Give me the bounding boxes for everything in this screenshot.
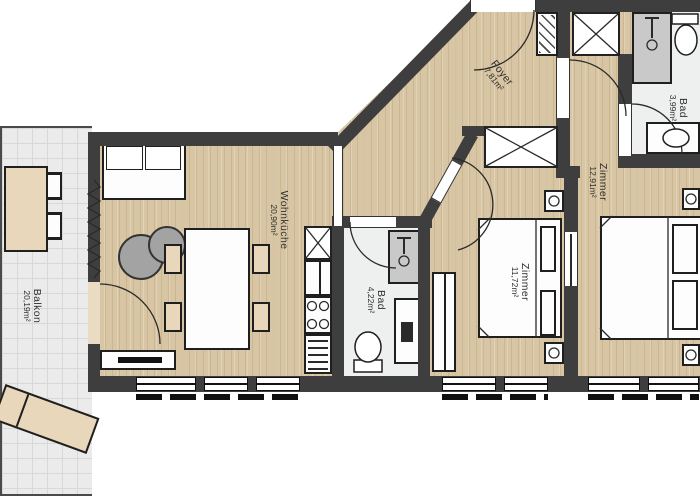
- bedrooms-connect-opening: [564, 232, 578, 286]
- wardrobe-bedroom2: [572, 12, 620, 56]
- dining-table: [184, 228, 250, 350]
- wall-left: [88, 132, 100, 392]
- nightstand: [544, 342, 564, 364]
- room-label-wohnkueche: Wohnküche 20,90m²: [268, 191, 290, 250]
- stove: [304, 296, 332, 334]
- nightstand: [544, 190, 564, 212]
- window: [256, 377, 300, 391]
- window: [204, 377, 248, 391]
- window: [504, 377, 548, 391]
- sofa: [102, 142, 186, 200]
- balcony-chair: [46, 172, 62, 200]
- pillow: [672, 224, 698, 274]
- pillow: [540, 226, 556, 272]
- bath2-door-opening: [618, 104, 632, 156]
- dishwasher: [304, 334, 332, 374]
- living-opening: [333, 146, 343, 226]
- room-label-bad2: Bad 3,99m²: [667, 95, 689, 121]
- room-label-zimmer1: Zimmer 11,72m²: [509, 263, 531, 301]
- nightstand: [682, 188, 700, 210]
- wall-kitchen-bath: [332, 224, 344, 390]
- window: [442, 377, 496, 391]
- room-label-balkon: Balkon 20,19m²: [21, 289, 43, 324]
- room-label-bad1: Bad 4,22m²: [365, 287, 387, 313]
- window: [588, 377, 640, 391]
- bedroom2-door-opening: [556, 58, 570, 118]
- wall-bath1-right: [418, 216, 430, 390]
- balcony-door-opening: [88, 282, 100, 344]
- nightstand: [682, 344, 700, 366]
- wall-bath2-bottom: [618, 154, 700, 168]
- lowboard: [100, 350, 176, 370]
- room-label-zimmer2: Zimmer 12,91m²: [587, 163, 609, 201]
- floor-plan: Balkon 20,19m² Wohnküche 20,90m² Foyer 7…: [0, 0, 700, 500]
- window-hatch: [136, 394, 196, 400]
- sink: [388, 230, 420, 284]
- balcony-table: [4, 166, 48, 252]
- window: [648, 377, 699, 391]
- wardrobe-foyer: [484, 126, 558, 168]
- chair: [164, 302, 182, 332]
- window: [136, 377, 196, 391]
- chair: [252, 302, 270, 332]
- entry-door-opening: [470, 0, 536, 12]
- wall-bath2-left: [618, 54, 632, 104]
- kitchen-cabinet: [304, 260, 332, 296]
- chair: [164, 244, 182, 274]
- window-hatch: [204, 394, 300, 400]
- pillow: [540, 290, 556, 336]
- sink-cabinet: [646, 122, 700, 154]
- shower: [632, 12, 672, 84]
- pillow: [672, 280, 698, 330]
- wall-top-living: [88, 132, 338, 146]
- shoe-cabinet: [536, 12, 558, 56]
- fridge: [304, 226, 332, 260]
- wardrobe-bedroom1: [432, 272, 456, 372]
- washing-machine: [394, 298, 420, 364]
- balcony-chair: [46, 212, 62, 240]
- bath1-door-opening: [350, 216, 396, 228]
- window-hatch: [442, 394, 548, 400]
- window-hatch: [588, 394, 699, 400]
